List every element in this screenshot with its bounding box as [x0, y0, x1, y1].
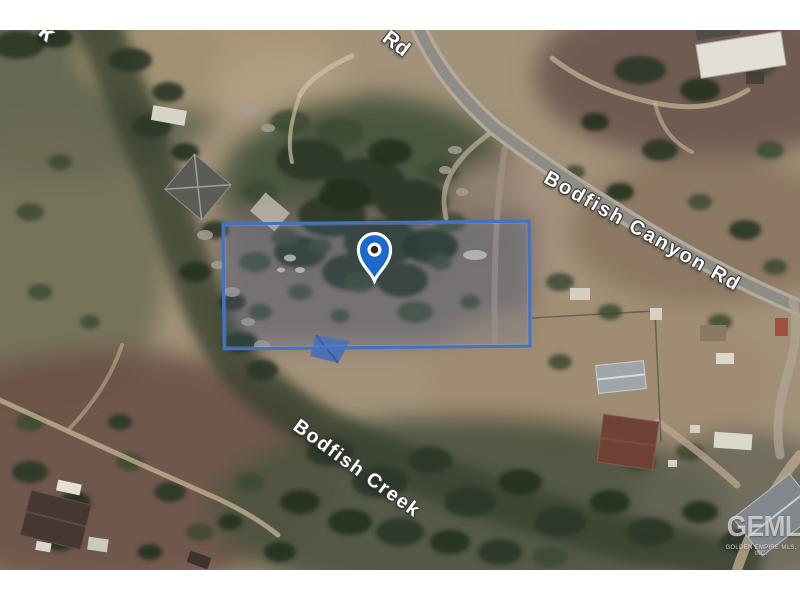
- map-canvas[interactable]: k Rd Bodfish Canyon Rd Bodfish Creek GEM…: [0, 30, 800, 570]
- letterbox-top: [0, 0, 800, 30]
- letterbox-bottom: [0, 570, 800, 600]
- pin-dot: [371, 246, 379, 254]
- pin-body: [358, 234, 390, 281]
- location-pin[interactable]: [355, 229, 394, 284]
